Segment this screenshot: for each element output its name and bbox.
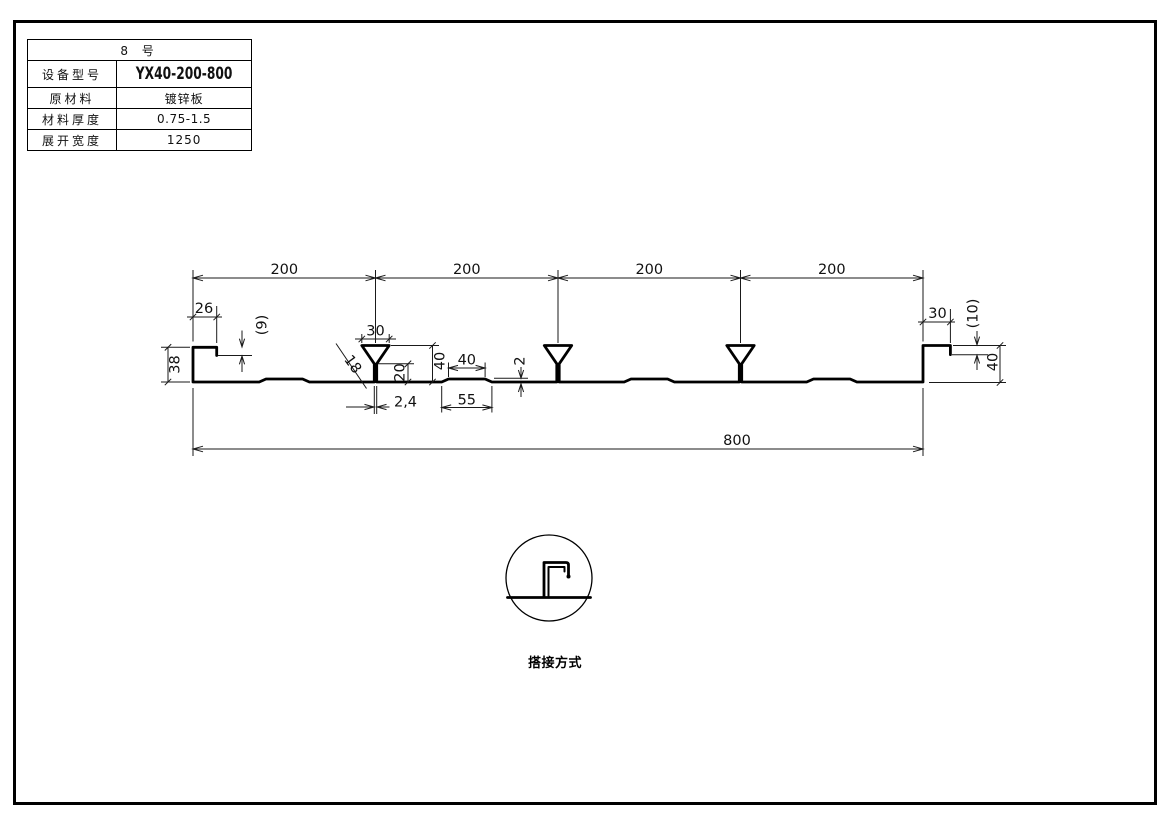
lap-joint-caption: 搭接方式: [495, 652, 615, 671]
drawing-sheet: 8 号 设备型号 YX40-200-800 原材料 镀锌板 材料厚度 0.75-…: [0, 0, 1169, 827]
detail-under-sheet: [549, 567, 565, 597]
dim-left-height: 38: [168, 355, 184, 373]
dim-left-step: (9): [255, 315, 271, 336]
dim-rib-stem-height: 20: [393, 363, 409, 381]
lap-joint-detail: [506, 535, 592, 621]
dim-flute-height: 2: [513, 356, 529, 365]
dim-left-lip: 26: [195, 301, 213, 317]
dim-span-3: 200: [635, 262, 663, 278]
panel-profile-outline: [193, 346, 950, 383]
dim-flute-bottom: 55: [458, 393, 476, 409]
dim-total-width: 800: [723, 433, 751, 449]
overall-width-dim: 800: [193, 388, 923, 456]
dim-rib-top: 30: [366, 324, 384, 340]
dim-right-height: 40: [986, 353, 1002, 371]
dim-right-step: (10): [966, 299, 982, 329]
dim-right-lip: 30: [928, 306, 946, 322]
dim-span-2: 200: [453, 262, 481, 278]
left-edge-dims: 26 (9) 38: [161, 301, 271, 385]
dim-rib-side: 18: [340, 352, 364, 376]
dim-span-1: 200: [270, 262, 298, 278]
top-span-dims: 200 200 200 200: [193, 262, 923, 343]
rib-dims: 30 18 20 40 2,4: [336, 324, 449, 415]
detail-edge-dot: [567, 575, 571, 579]
dim-rib-stem-width: 2,4: [394, 395, 417, 411]
right-edge-dims: 30 (10) 40: [918, 299, 1006, 386]
dim-flute-top: 40: [458, 353, 476, 369]
dim-span-4: 200: [818, 262, 846, 278]
dim-rib-height: 40: [433, 352, 449, 370]
profile-drawing-svg: 200 200 200 200 800 26 (9): [0, 0, 1169, 827]
